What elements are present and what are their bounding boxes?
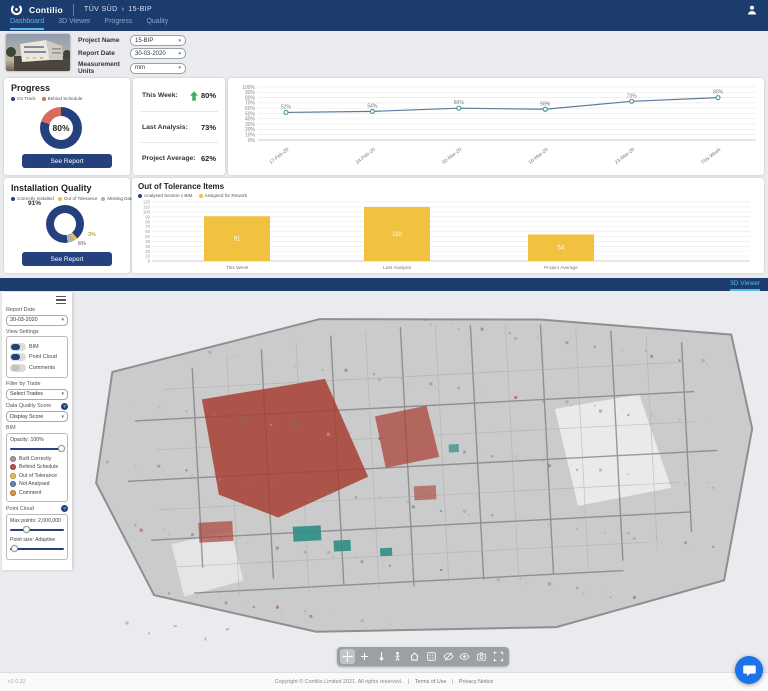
panel-report-date-value: 30-03-2020 [10, 317, 38, 323]
svg-text:Project Average: Project Average [544, 265, 578, 271]
contilio-logo-icon [10, 3, 23, 16]
svg-text:24-Feb-20: 24-Feb-20 [355, 147, 377, 166]
stat-value: 73% [201, 123, 216, 132]
top-bar: Contilio TÜV SÜD › 15-BIP Dashboard 3D V… [0, 0, 768, 31]
legend-dot [10, 481, 16, 487]
legend-dot [11, 197, 15, 201]
units-value: mm [135, 65, 145, 71]
chat-support-button[interactable] [735, 656, 763, 684]
terms-link[interactable]: Terms of Use [415, 679, 447, 685]
tab-progress[interactable]: Progress [104, 18, 132, 30]
svg-text:20: 20 [145, 249, 150, 254]
svg-text:This Week: This Week [226, 265, 249, 271]
stat-label: This Week: [142, 92, 178, 99]
stat-value: 62% [201, 154, 216, 163]
svg-text:80%: 80% [713, 90, 724, 96]
chevron-down-icon: ▾ [178, 65, 181, 71]
legend-dot [138, 194, 142, 198]
units-select[interactable]: mm ▾ [130, 63, 186, 74]
svg-text:50%: 50% [245, 111, 256, 117]
svg-text:100: 100 [143, 209, 151, 214]
home-icon[interactable] [407, 649, 422, 664]
toggle-label: BIM [29, 344, 39, 350]
svg-text:90: 90 [145, 214, 150, 219]
svg-text:110: 110 [143, 205, 150, 210]
pan-icon[interactable] [357, 649, 372, 664]
progress-stats-card: This Week: 80% Last Analysis: 73% Projec… [133, 78, 225, 175]
viewer-tab-bar: 3D Viewer [0, 278, 768, 291]
svg-text:10: 10 [145, 254, 150, 259]
fit-view-icon[interactable] [424, 649, 439, 664]
bim-box: Opacity: 100% Built CorrectlyBehind Sche… [6, 433, 68, 503]
legend-dot [10, 490, 16, 496]
project-name-value: 15-BIP [135, 38, 153, 44]
legend-label: Built Correctly [19, 456, 51, 462]
svg-text:54: 54 [558, 246, 565, 252]
svg-text:80%: 80% [245, 95, 256, 101]
svg-text:40%: 40% [245, 117, 256, 123]
brand-name: Contilio [29, 5, 63, 15]
bim-legend-item: Out of Tolerance [10, 473, 64, 479]
toggle-label: Comments [29, 365, 55, 371]
svg-text:50: 50 [145, 234, 150, 239]
progress-donut-chart: 80% [40, 107, 82, 149]
progress-donut-value: 80% [49, 116, 73, 140]
toggle-bim: BIM [10, 343, 64, 351]
legend-label: Analysed Section v BIM [144, 193, 193, 198]
dqs-value: Display Score [10, 414, 43, 420]
toggle-label: Point Cloud [29, 354, 57, 360]
progress-see-report-button[interactable]: See Report [22, 154, 112, 168]
viewer-settings-panel: Report Date 30-03-2020 ▾ View Settings B… [2, 292, 72, 570]
svg-text:60: 60 [145, 229, 150, 234]
breadcrumb-org[interactable]: TÜV SÜD [84, 6, 118, 13]
legend-dot [58, 197, 62, 201]
fullscreen-icon[interactable] [491, 649, 506, 664]
bim-legend-item: Not Analysed [10, 481, 64, 487]
legend-dot [11, 97, 15, 101]
project-thumbnail [6, 34, 70, 71]
legend-item: Behind Schedule [42, 96, 83, 101]
point-cloud-view[interactable] [78, 296, 764, 648]
report-date-select[interactable]: 30-03-2020 ▾ [130, 48, 186, 59]
view-settings-box: BIMPoint CloudComments [6, 336, 68, 378]
svg-text:02-Mar-20: 02-Mar-20 [441, 147, 463, 166]
stat-value: 80% [201, 91, 216, 100]
legend-item: On Track [11, 96, 36, 101]
point-size-label: Point size: Adaptive [10, 537, 64, 543]
chevron-down-icon: ▾ [178, 38, 181, 44]
data-quality-score-select[interactable]: Display Score ▾ [6, 411, 68, 422]
show-objects-icon[interactable] [458, 649, 473, 664]
quality-card: Installation Quality Correctly Installed… [4, 178, 130, 273]
legend-item: Missing Data [101, 196, 134, 201]
legend-label: Not Analysed [19, 481, 50, 487]
svg-text:30: 30 [145, 244, 150, 249]
tolerance-bar-chart: 010203040506070809010011012091This Week1… [138, 199, 764, 278]
legend-dot [10, 464, 16, 470]
svg-text:60%: 60% [454, 100, 465, 106]
svg-text:0: 0 [148, 259, 151, 264]
toggle-point-cloud: Point Cloud [10, 353, 64, 361]
svg-text:10%: 10% [245, 133, 256, 139]
chevron-down-icon: ▾ [61, 391, 64, 397]
legend-label: Assigned for Rework [205, 193, 247, 198]
svg-text:54%: 54% [367, 103, 378, 109]
stat-this-week: This Week: 80% [140, 80, 218, 111]
breadcrumb-project[interactable]: 15-BIP [128, 6, 152, 13]
stat-label: Project Average: [142, 155, 196, 162]
max-points-slider[interactable] [10, 526, 64, 534]
opacity-label: Opacity: 100% [10, 437, 64, 443]
toggle-comments: Comments [10, 364, 64, 372]
svg-text:30%: 30% [245, 122, 256, 128]
toggle-switch[interactable] [10, 343, 26, 351]
tab-3d-viewer[interactable]: 3D Viewer [58, 18, 90, 30]
copyright-text: Copyright © Contilio Limited 2021. All r… [275, 679, 403, 685]
legend-label: Out of Tolerance [64, 196, 98, 201]
chevron-down-icon: ▾ [61, 414, 64, 420]
footer-separator: | [452, 679, 453, 685]
svg-text:Last Analysis: Last Analysis [383, 265, 412, 271]
divider [73, 4, 74, 16]
quality-callout-missing: 6% [78, 241, 86, 247]
footer: v2.0.32 Copyright © Contilio Limited 202… [0, 672, 768, 691]
panel-report-date-select[interactable]: 30-03-2020 ▾ [6, 315, 68, 326]
chevron-down-icon: ▾ [61, 317, 64, 323]
legend-dot [199, 194, 203, 198]
tab-dashboard[interactable]: Dashboard [10, 18, 44, 30]
svg-text:110: 110 [392, 232, 402, 238]
svg-text:40: 40 [145, 239, 150, 244]
drop-icon[interactable] [374, 649, 389, 664]
user-account-icon[interactable] [746, 3, 758, 15]
svg-text:52%: 52% [281, 104, 292, 110]
legend-label: Behind Schedule [48, 96, 83, 101]
progress-title: Progress [11, 83, 123, 93]
stat-project-average: Project Average: 62% [140, 142, 218, 173]
data-quality-score-label: Data Quality Score ? [6, 403, 68, 410]
orbit-icon[interactable] [340, 649, 355, 664]
legend-item: Out of Tolerance [58, 196, 98, 201]
bim-legend-item: Built Correctly [10, 456, 64, 462]
report-date-label: Report Date [78, 50, 130, 57]
legend-label: Missing Data [107, 196, 134, 201]
svg-text:20%: 20% [245, 127, 256, 133]
viewer-tab-3d[interactable]: 3D Viewer [730, 280, 760, 291]
legend-item: Assigned for Rework [199, 193, 247, 198]
svg-text:91: 91 [234, 237, 241, 243]
point-size-slider[interactable] [10, 545, 64, 553]
toggle-switch[interactable] [10, 364, 26, 372]
chevron-down-icon: ▾ [178, 51, 181, 57]
bim-legend-item: Comment [10, 490, 64, 496]
hide-objects-icon[interactable] [441, 649, 456, 664]
tolerance-title: Out of Tolerance Items [138, 182, 764, 191]
filter-value: Select Trades [10, 391, 43, 397]
point-cloud-box: Max points: 2,000,000 Point size: Adapti… [6, 514, 68, 560]
filter-by-trade-select[interactable]: Select Trades ▾ [6, 389, 68, 400]
svg-text:23-Mar-20: 23-Mar-20 [614, 147, 636, 166]
progress-legend: On TrackBehind Schedule [11, 96, 123, 101]
help-icon[interactable]: ? [61, 403, 68, 410]
help-icon[interactable]: ? [61, 505, 68, 512]
legend-dot [10, 456, 16, 462]
svg-text:70%: 70% [245, 101, 256, 107]
svg-text:17-Feb-20: 17-Feb-20 [268, 147, 290, 166]
trend-up-icon [190, 91, 198, 101]
legend-label: Behind Schedule [19, 464, 58, 470]
quality-donut-chart [46, 205, 84, 243]
svg-text:120: 120 [143, 200, 151, 205]
units-label: Measurement Units [78, 61, 130, 75]
breadcrumb: TÜV SÜD › 15-BIP [84, 6, 152, 13]
progress-line-chart: 0%10%20%30%40%50%60%70%80%90%100%52%17-F… [228, 78, 764, 180]
app-window: Contilio TÜV SÜD › 15-BIP Dashboard 3D V… [0, 0, 768, 691]
quality-callout-correct: 91% [28, 200, 41, 207]
svg-text:73%: 73% [627, 93, 638, 99]
opacity-slider[interactable] [10, 445, 64, 453]
panel-report-date-label: Report Date [6, 307, 68, 313]
stat-last-analysis: Last Analysis: 73% [140, 111, 218, 142]
footer-separator: | [408, 679, 409, 685]
svg-text:80: 80 [145, 219, 150, 224]
legend-dot [101, 197, 105, 201]
progress-card: Progress On TrackBehind Schedule 80% See… [4, 78, 130, 175]
legend-label: Out of Tolerance [19, 473, 57, 479]
svg-text:58%: 58% [540, 101, 551, 107]
svg-text:100%: 100% [242, 85, 255, 91]
stat-label: Last Analysis: [142, 124, 188, 131]
project-name-select[interactable]: 15-BIP ▾ [130, 35, 186, 46]
bim-section-label: BIM [6, 425, 68, 431]
viewer-toolbar [337, 647, 509, 666]
svg-text:70: 70 [145, 224, 150, 229]
legend-item: Analysed Section v BIM [138, 193, 193, 198]
filter-by-trade-label: Filter by Trade [6, 381, 68, 387]
svg-text:This Week: This Week [700, 147, 723, 167]
report-date-value: 30-03-2020 [135, 51, 166, 57]
svg-text:16-Mar-20: 16-Mar-20 [528, 147, 550, 166]
view-settings-label: View Settings [6, 329, 68, 335]
breadcrumb-separator: › [122, 6, 125, 13]
svg-text:0%: 0% [248, 138, 256, 144]
progress-trend-card: 0%10%20%30%40%50%60%70%80%90%100%52%17-F… [228, 78, 764, 175]
quality-title: Installation Quality [11, 183, 123, 193]
quality-callout-tolerance: 3% [88, 232, 96, 238]
screenshot-icon[interactable] [474, 649, 489, 664]
bim-legend: Built CorrectlyBehind ScheduleOut of Tol… [10, 456, 64, 496]
menu-icon[interactable] [56, 296, 66, 304]
bim-legend-item: Behind Schedule [10, 464, 64, 470]
main-nav: Dashboard 3D Viewer Progress Quality [10, 18, 168, 30]
project-name-label: Project Name [78, 37, 130, 44]
first-person-icon[interactable] [390, 649, 405, 664]
tolerance-card: Out of Tolerance Items Analysed Section … [132, 178, 764, 273]
privacy-link[interactable]: Privacy Notice [459, 679, 493, 685]
svg-text:90%: 90% [245, 90, 256, 96]
toggle-switch[interactable] [10, 353, 26, 361]
quality-see-report-button[interactable]: See Report [22, 252, 112, 266]
max-points-label: Max points: 2,000,000 [10, 518, 64, 524]
legend-label: Comment [19, 490, 42, 496]
tab-quality[interactable]: Quality [146, 18, 168, 30]
tolerance-legend: Analysed Section v BIMAssigned for Rewor… [138, 193, 764, 198]
legend-label: On Track [17, 96, 36, 101]
svg-text:60%: 60% [245, 106, 256, 112]
legend-dot [10, 473, 16, 479]
point-cloud-section-label: Point Cloud ? [6, 505, 68, 512]
legend-dot [42, 97, 46, 101]
